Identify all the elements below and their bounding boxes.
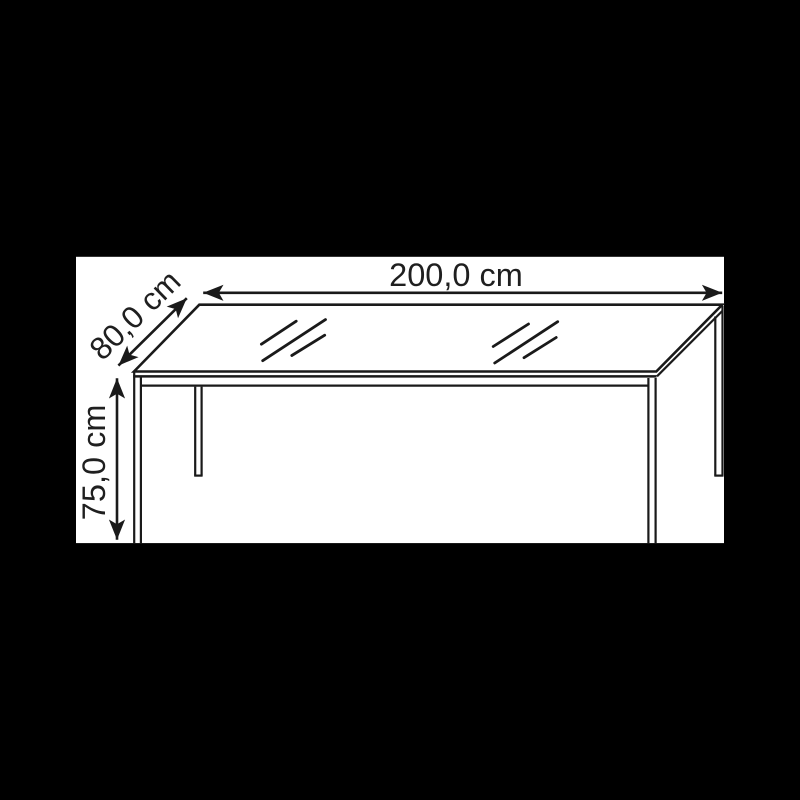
svg-text:75,0 cm: 75,0 cm [76,405,112,521]
svg-text:200,0 cm: 200,0 cm [389,257,523,293]
